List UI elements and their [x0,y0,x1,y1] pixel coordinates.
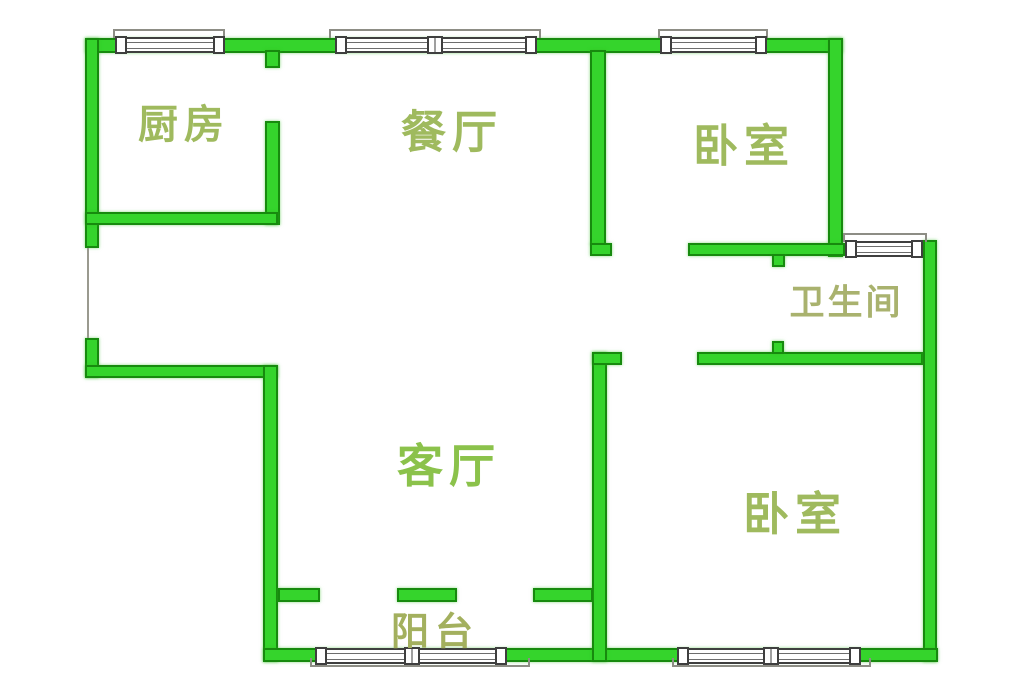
floor-plan: 厨房 餐厅 卧室 卫生间 客厅 卧室 阳台 [0,0,1024,681]
window-post [660,36,672,54]
window-post [495,647,507,665]
wall-balcony-divider-right [533,588,593,602]
window-bedroom-top [660,37,767,53]
window-post [677,647,689,665]
window-dining [335,37,537,53]
window-post [525,36,537,54]
window-bathroom [845,241,923,257]
room-label-kitchen: 厨房 [132,92,230,150]
window-mullion [427,36,443,54]
window-kitchen [115,37,225,53]
wall-bathroom-bottom [697,352,923,365]
window-bedroom-bottom [677,648,861,664]
wall-kitchen-bottom [85,212,278,225]
room-label-bedroom-top: 卧室 [687,110,795,175]
room-label-bedroom-bottom: 卧室 [737,478,847,544]
wall-bathroom-top-notch [772,254,785,267]
wall-left-mid-horizontal [85,365,278,378]
window-post [845,240,857,258]
room-label-living: 客厅 [391,430,501,496]
room-label-bathroom: 卫生间 [786,275,903,326]
room-label-dining: 餐厅 [395,96,503,161]
window-post [213,36,225,54]
wall-dining-divider [590,50,606,245]
wall-bedroom-top-right [828,38,843,257]
wall-right-outer [923,240,937,662]
window-post [849,647,861,665]
window-post [755,36,767,54]
wall-kitchen-divider [265,121,280,225]
wall-kitchen-divider-tab [265,50,280,68]
wall-bathroom-top [688,243,845,256]
wall-living-bedroom-divider [592,352,607,662]
window-glass [118,42,222,49]
wall-balcony-divider-left [278,588,320,602]
wall-dining-divider-foot [590,243,612,256]
wall-bathroom-bottom-notch [772,341,784,354]
wall-bedroom-bottom-stub [592,352,622,365]
window-post [911,240,923,258]
window-glass [663,42,764,49]
window-mullion [763,647,779,665]
window-post [315,647,327,665]
window-glass [848,246,920,253]
room-label-balcony: 阳台 [385,601,479,656]
window-post [335,36,347,54]
entry-opening-line [87,248,89,338]
wall-living-left [263,365,278,662]
window-post [115,36,127,54]
